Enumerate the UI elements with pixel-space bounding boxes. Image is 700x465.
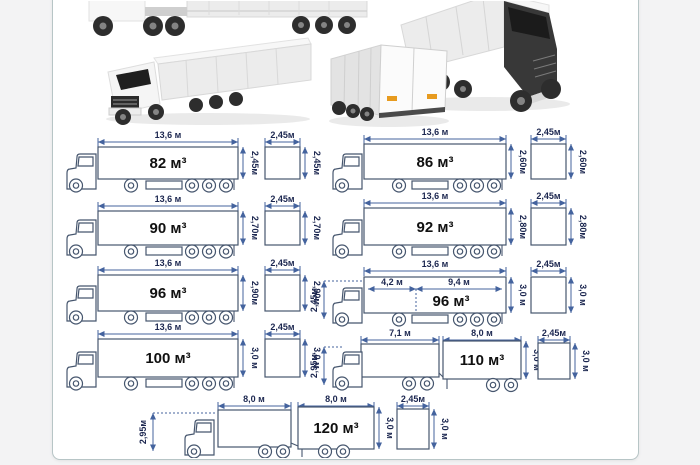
height-label: 2,70м (250, 216, 260, 241)
volume-label: 100 м³ (145, 350, 190, 367)
truck-82-diagram: 13,6 м 82 м³ 2,45м 2,45м 2,45м (67, 130, 322, 192)
volume-label: 82 м³ (150, 155, 187, 172)
volume-label: 96 м³ (433, 293, 470, 310)
truck-photo-front-quarter-white (106, 38, 311, 125)
volume-label: 90 м³ (150, 220, 187, 237)
length-label: 13,6 м (155, 130, 182, 140)
section-width-label: 2,45м (536, 259, 561, 269)
section-width-label: 2,45м (401, 394, 426, 404)
truck-90-diagram: 13,6 м 90 м³ 2,70м 2,45м 2,70м (67, 194, 322, 258)
height-label: 2,80м (518, 215, 528, 240)
truck-92-diagram: 13,6 м 92 м³ 2,80м 2,45м 2,80м (333, 191, 588, 258)
truck-96-jumbo-diagram: 13,6 м 4,2 м 9,4 м 96 м³ 3,0 м 2,45м 2,4… (309, 259, 588, 326)
front-length-label: 7,1 м (389, 328, 411, 338)
section-height-label: 3,0 м (440, 418, 450, 440)
cab-height-label: 2,95м (138, 420, 148, 445)
truck-photo-rear-quarter (329, 45, 449, 127)
length-label: 13,6 м (155, 258, 182, 268)
section-height-label: 3,0 м (578, 284, 588, 306)
length-label: 13,6 м (155, 322, 182, 332)
height-label: 2,90м (250, 281, 260, 306)
length-label: 13,6 м (422, 191, 449, 201)
rear-length-label: 8,0 м (325, 394, 347, 404)
truck-86-diagram: 13,6 м 86 м³ 2,60м 2,45м 2,60м (333, 127, 588, 192)
section-height-label: 2,45м (312, 151, 322, 176)
section-width-label: 2,45м (270, 130, 295, 140)
volume-label: 92 м³ (417, 219, 454, 236)
section-width-label: 2,45м (270, 258, 295, 268)
length-label: 13,6 м (155, 194, 182, 204)
rear-length-label: 8,0 м (471, 328, 493, 338)
height-label: 3,0 м (250, 347, 260, 369)
height-label: 3,0 м (385, 417, 395, 439)
truck-96-diagram: 13,6 м 96 м³ 2,90м 2,45м 2,90м (67, 258, 322, 324)
section-height-label: 3,0 м (581, 350, 591, 372)
volume-label: 120 м³ (313, 420, 358, 437)
truck-110-diagram: 7,1 м 8,0 м 110 м³ 3,0 м 2,95м 2,45м 3,0… (309, 328, 591, 392)
height-label: 3,0 м (518, 284, 528, 306)
section-width-label: 2,45м (270, 194, 295, 204)
length-label: 13,6 м (422, 127, 449, 137)
section-width-label: 2,45м (536, 191, 561, 201)
truck-100-diagram: 13,6 м 100 м³ 3,0 м 2,45м 3,0 м (67, 322, 322, 390)
section-height-label: 2,60м (578, 150, 588, 175)
content-card: 13,6 м 82 м³ 2,45м 2,45м 2,45м 13,6 м 86… (52, 0, 639, 460)
rear-length-label: 9,4 м (448, 277, 470, 287)
section-width-label: 2,45м (270, 322, 295, 332)
section-height-label: 2,70м (312, 216, 322, 241)
page-background: 13,6 м 82 м³ 2,45м 2,45м 2,45м 13,6 м 86… (0, 0, 700, 465)
truck-photo-side-view (89, 1, 367, 36)
front-length-label: 8,0 м (243, 394, 265, 404)
height-label: 2,45м (250, 151, 260, 176)
trucks-diagram-canvas: 13,6 м 82 м³ 2,45м 2,45м 2,45м 13,6 м 86… (53, 1, 638, 458)
section-width-label: 2,45м (542, 328, 567, 338)
front-length-label: 4,2 м (381, 277, 403, 287)
cab-height-label: 2,95м (309, 354, 319, 379)
cab-height-label: 2,45м (309, 288, 319, 313)
truck-120-diagram: 8,0 м 8,0 м 120 м³ 3,0 м 2,95м 2,45м 3,0… (138, 394, 450, 458)
volume-label: 86 м³ (417, 154, 454, 171)
section-height-label: 2,80м (578, 215, 588, 240)
length-label: 13,6 м (422, 259, 449, 269)
volume-label: 110 м³ (460, 352, 504, 369)
height-label: 2,60м (518, 150, 528, 175)
volume-label: 96 м³ (150, 285, 187, 302)
section-width-label: 2,45м (536, 127, 561, 137)
